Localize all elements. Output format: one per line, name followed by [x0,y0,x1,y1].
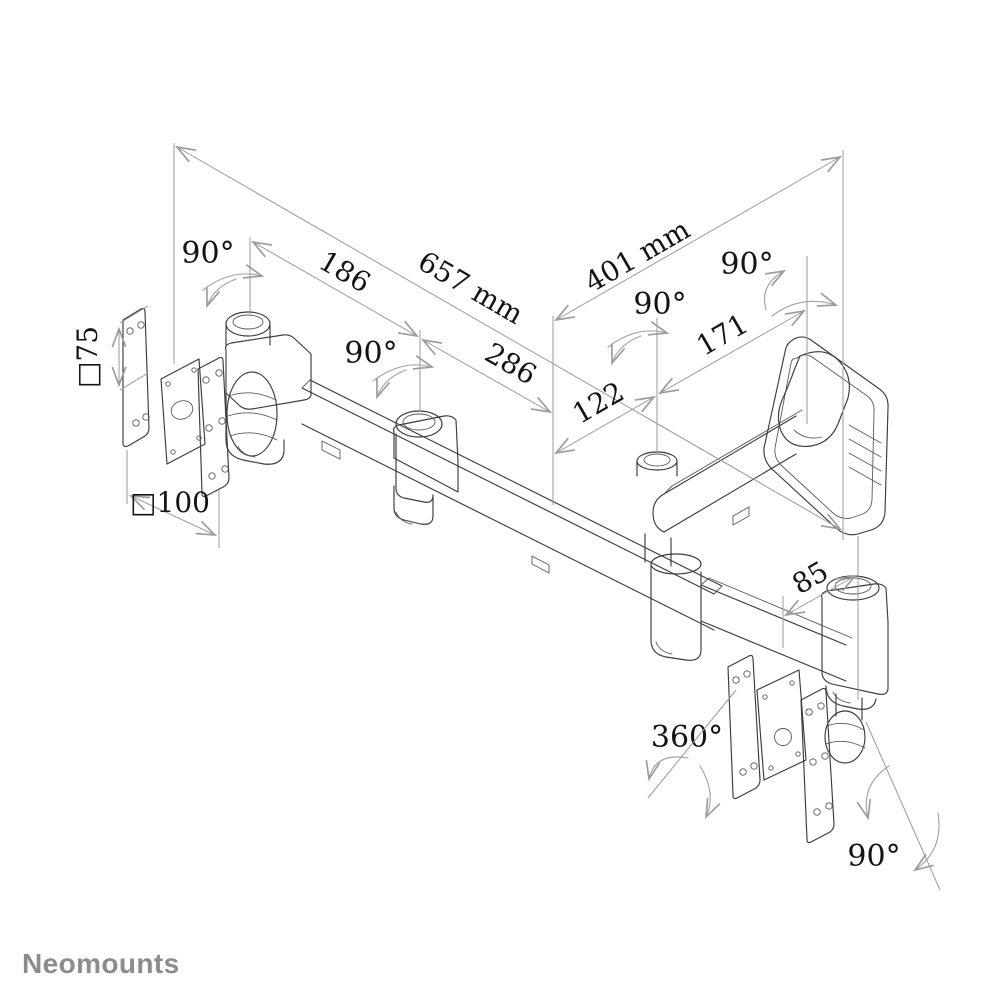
drawing-line [127,328,133,334]
mount-drawing-svg: 657 mm 186 286 401 mm 122 171 85 □75 □10… [0,0,1004,1004]
right-vesa-backplate [757,670,806,780]
drawing-line [228,413,277,420]
drawing-line [222,466,228,472]
drawing-line [203,377,209,383]
drawing-line [796,752,800,756]
drawing-line [207,279,236,306]
drawing-line [744,671,750,677]
drawing-line [772,301,836,316]
drawing-line [866,766,889,818]
right-tilt-ball [825,711,865,763]
dim-label-657: 657 mm [413,245,529,331]
angle-label-left-swivel: 90° [181,236,234,271]
drawing-line [403,414,435,430]
drawing-line [120,373,148,390]
drawing-line [709,578,852,638]
drawing-line [806,709,812,715]
dimension-lines: 657 mm 186 286 401 mm 122 171 85 □75 □10… [71,143,858,700]
cable-clip [322,441,340,459]
drawing-line [203,274,262,290]
drawing-line [302,380,310,388]
drawing-line [302,424,714,630]
drawing-line [229,393,276,400]
angle-label-wall-swivel: 90° [720,247,773,282]
dim-label-286: 286 [479,336,542,391]
drawing-line [763,695,767,699]
drawing-line [612,336,641,363]
dim-label-186: 186 [313,244,376,299]
drawing-line [814,809,820,815]
drawing-line [701,621,846,681]
drawing-line [209,473,215,479]
drawing-line [302,388,714,594]
junction-clamp-cap [651,554,701,574]
drawing-line [230,433,277,440]
dim-label-171: 171 [691,307,754,362]
drawing-line [790,681,794,685]
right-vesa-head [728,655,865,842]
drawing-line [377,370,406,397]
dim-label-100: □100 [130,486,210,519]
drawing-line [769,766,773,770]
dim-label-85: 85 [787,555,834,601]
drawing-line [656,642,672,654]
drawing-line [701,578,709,585]
drawing-line [664,416,796,494]
drawing-line [794,430,822,438]
drawing-line [701,585,846,645]
drawing-line [826,686,876,709]
drawing-line [608,331,667,347]
drawing-line [120,306,148,323]
drawing-line [219,418,225,424]
junction-joint [637,452,701,660]
drawing-line [649,757,688,779]
drawing-line [192,368,196,372]
cable-clip [733,507,749,525]
drawing-line [826,803,832,809]
drawing-line [740,769,746,775]
drawing-line [822,753,828,759]
left-vesa-head [123,308,277,496]
drawing-line [700,766,710,817]
wall-plate [764,337,888,535]
drawing-line [171,450,175,454]
drawing-line [394,416,458,492]
angle-label-mid-swivel: 90° [344,336,397,371]
drawing-line [733,677,739,683]
dim-label-75: □75 [71,326,104,388]
drawing-line [818,703,824,709]
neomounts-logo: Neomounts [22,948,322,980]
drawing-line [310,380,722,586]
wall-plate-cone [778,352,849,447]
left-knob-cap [226,312,270,336]
angle-label-head-tilt: 90° [847,839,900,874]
drawing-line [810,759,816,765]
drawing-line [216,370,222,376]
technical-drawing-page: 657 mm 186 286 401 mm 122 171 85 □75 □10… [0,0,1004,1004]
right-swivel-joint [822,576,888,709]
drawing-line [138,322,144,328]
dim-label-122: 122 [567,375,630,430]
dim-label-401: 401 mm [579,213,695,299]
wall-plate-inner [775,355,874,519]
junction-knob-cap [637,452,677,470]
drawing-line [169,398,196,422]
crossbar-beam [302,380,722,630]
drawing-line [206,425,212,431]
drawing-line [826,741,865,748]
left-swivel-joint [226,312,311,464]
drawing-line [827,723,864,730]
drawing-line [835,578,871,594]
drawing-line [644,454,670,466]
drawing-line [166,382,170,386]
rotation-indicators: 90° 90° 90° 90° 360° 90° [181,236,940,890]
angle-label-junction-swivel: 90° [633,287,686,322]
drawing-line [672,410,802,486]
right-knob-cap [827,576,879,600]
right-vesa-plate-outer [728,655,760,798]
wall-plate-slots [849,425,881,485]
left-clamp-housing [226,335,311,409]
mid-swivel-joint [394,411,458,524]
drawing-line [233,315,263,329]
drawing-line [133,420,139,426]
cable-clip [532,556,549,573]
left-vesa-plate-inner [198,357,229,496]
drawing-line [775,729,792,746]
drawing-line [751,763,757,769]
drawing-line [653,494,664,532]
